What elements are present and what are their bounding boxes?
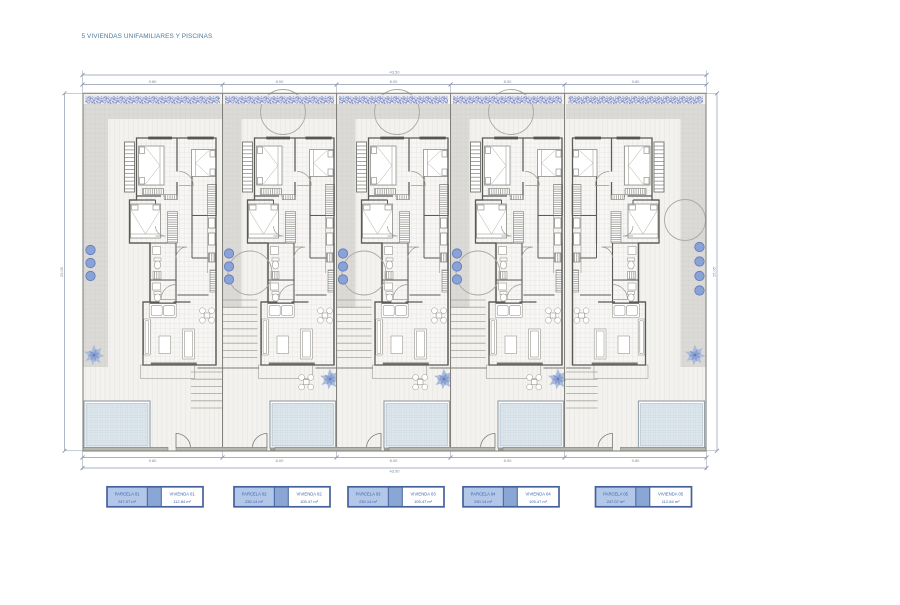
svg-text:230.14 m²: 230.14 m²	[359, 499, 378, 504]
svg-text:PARCELA 04: PARCELA 04	[471, 492, 496, 497]
svg-text:105.47 m²: 105.47 m²	[300, 499, 319, 504]
svg-text:VIVIENDA 05: VIVIENDA 05	[658, 492, 684, 497]
svg-text:25.05: 25.05	[712, 266, 717, 277]
svg-text:43.50: 43.50	[389, 469, 400, 474]
svg-text:9.80: 9.80	[632, 458, 641, 463]
svg-text:8.00: 8.00	[276, 79, 285, 84]
svg-text:8.00: 8.00	[390, 79, 399, 84]
svg-text:8.00: 8.00	[276, 458, 285, 463]
svg-text:8.00: 8.00	[504, 458, 513, 463]
svg-text:PARCELA 01: PARCELA 01	[115, 492, 140, 497]
svg-text:8.00: 8.00	[504, 79, 513, 84]
svg-text:247.07 m²: 247.07 m²	[118, 499, 137, 504]
svg-text:9.80: 9.80	[149, 458, 158, 463]
svg-text:247.07 m²: 247.07 m²	[607, 499, 626, 504]
svg-text:105.47 m²: 105.47 m²	[414, 499, 433, 504]
svg-text:105.47 m²: 105.47 m²	[529, 499, 548, 504]
svg-text:9.80: 9.80	[149, 79, 158, 84]
svg-text:43.50: 43.50	[389, 69, 400, 74]
svg-text:VIVIENDA 04: VIVIENDA 04	[526, 492, 552, 497]
svg-text:PARCELA 02: PARCELA 02	[242, 492, 267, 497]
svg-text:25.05: 25.05	[59, 266, 64, 277]
svg-text:112.84 m²: 112.84 m²	[662, 499, 680, 504]
svg-text:112.84 m²: 112.84 m²	[173, 499, 191, 504]
svg-text:5 VIVIENDAS UNIFAMILIARES Y PI: 5 VIVIENDAS UNIFAMILIARES Y PISCINAS	[82, 33, 213, 40]
svg-text:8.00: 8.00	[390, 458, 399, 463]
svg-text:230.14 m²: 230.14 m²	[474, 499, 493, 504]
svg-text:230.14 m²: 230.14 m²	[245, 499, 264, 504]
svg-text:VIVIENDA 01: VIVIENDA 01	[170, 492, 196, 497]
svg-text:PARCELA 03: PARCELA 03	[356, 492, 381, 497]
svg-text:9.80: 9.80	[632, 79, 641, 84]
svg-text:VIVIENDA 02: VIVIENDA 02	[297, 492, 323, 497]
svg-text:VIVIENDA 03: VIVIENDA 03	[411, 492, 437, 497]
svg-text:PARCELA 05: PARCELA 05	[603, 492, 628, 497]
